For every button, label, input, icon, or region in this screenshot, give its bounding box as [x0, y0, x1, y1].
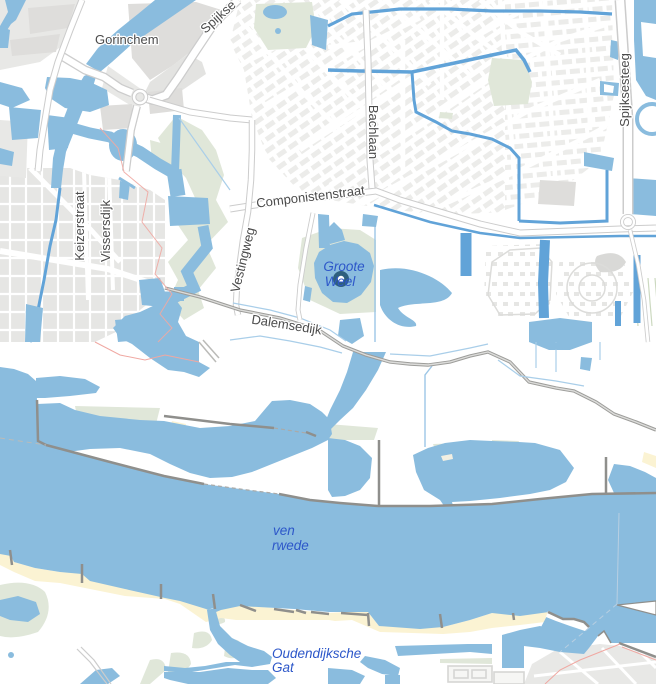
- svg-text:rwede: rwede: [272, 538, 309, 553]
- svg-text:Gat: Gat: [272, 660, 295, 675]
- svg-text:Groote: Groote: [323, 259, 364, 274]
- svg-text:Weel: Weel: [325, 274, 357, 289]
- svg-text:Vissersdijk: Vissersdijk: [98, 200, 113, 262]
- svg-text:Keizerstraat: Keizerstraat: [72, 191, 87, 261]
- svg-text:Spijksesteeg: Spijksesteeg: [617, 53, 632, 127]
- svg-text:Gorinchem: Gorinchem: [95, 32, 159, 47]
- svg-text:Bachlaan: Bachlaan: [366, 105, 381, 159]
- svg-text:Oudendijksche: Oudendijksche: [272, 646, 361, 661]
- svg-text:ven: ven: [273, 523, 295, 538]
